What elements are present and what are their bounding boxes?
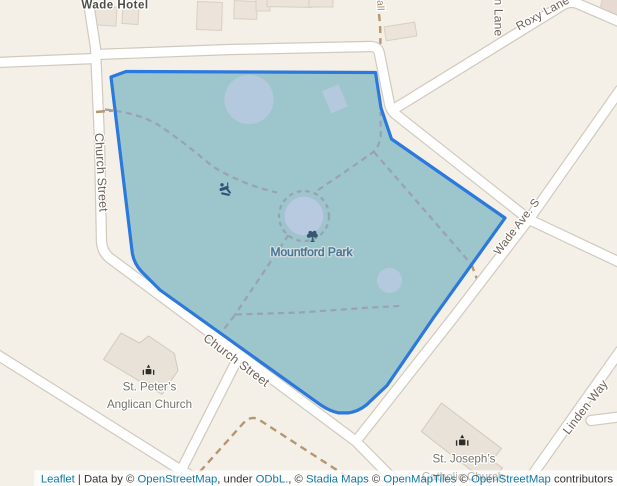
svg-text:St. Joseph’s: St. Joseph’s bbox=[433, 453, 496, 466]
svg-text:St. Peter’s: St. Peter’s bbox=[123, 381, 177, 394]
svg-text:Anglican Church: Anglican Church bbox=[107, 398, 192, 411]
svg-text:Wade Hotel: Wade Hotel bbox=[81, 0, 148, 12]
svg-text:Leaflet | Data by © OpenStreet: Leaflet | Data by © OpenStreetMap, under… bbox=[41, 473, 613, 485]
svg-text:Mountford Park: Mountford Park bbox=[270, 245, 353, 259]
svg-text:n Lane: n Lane bbox=[492, 0, 506, 37]
svg-text:all: all bbox=[374, 0, 385, 11]
